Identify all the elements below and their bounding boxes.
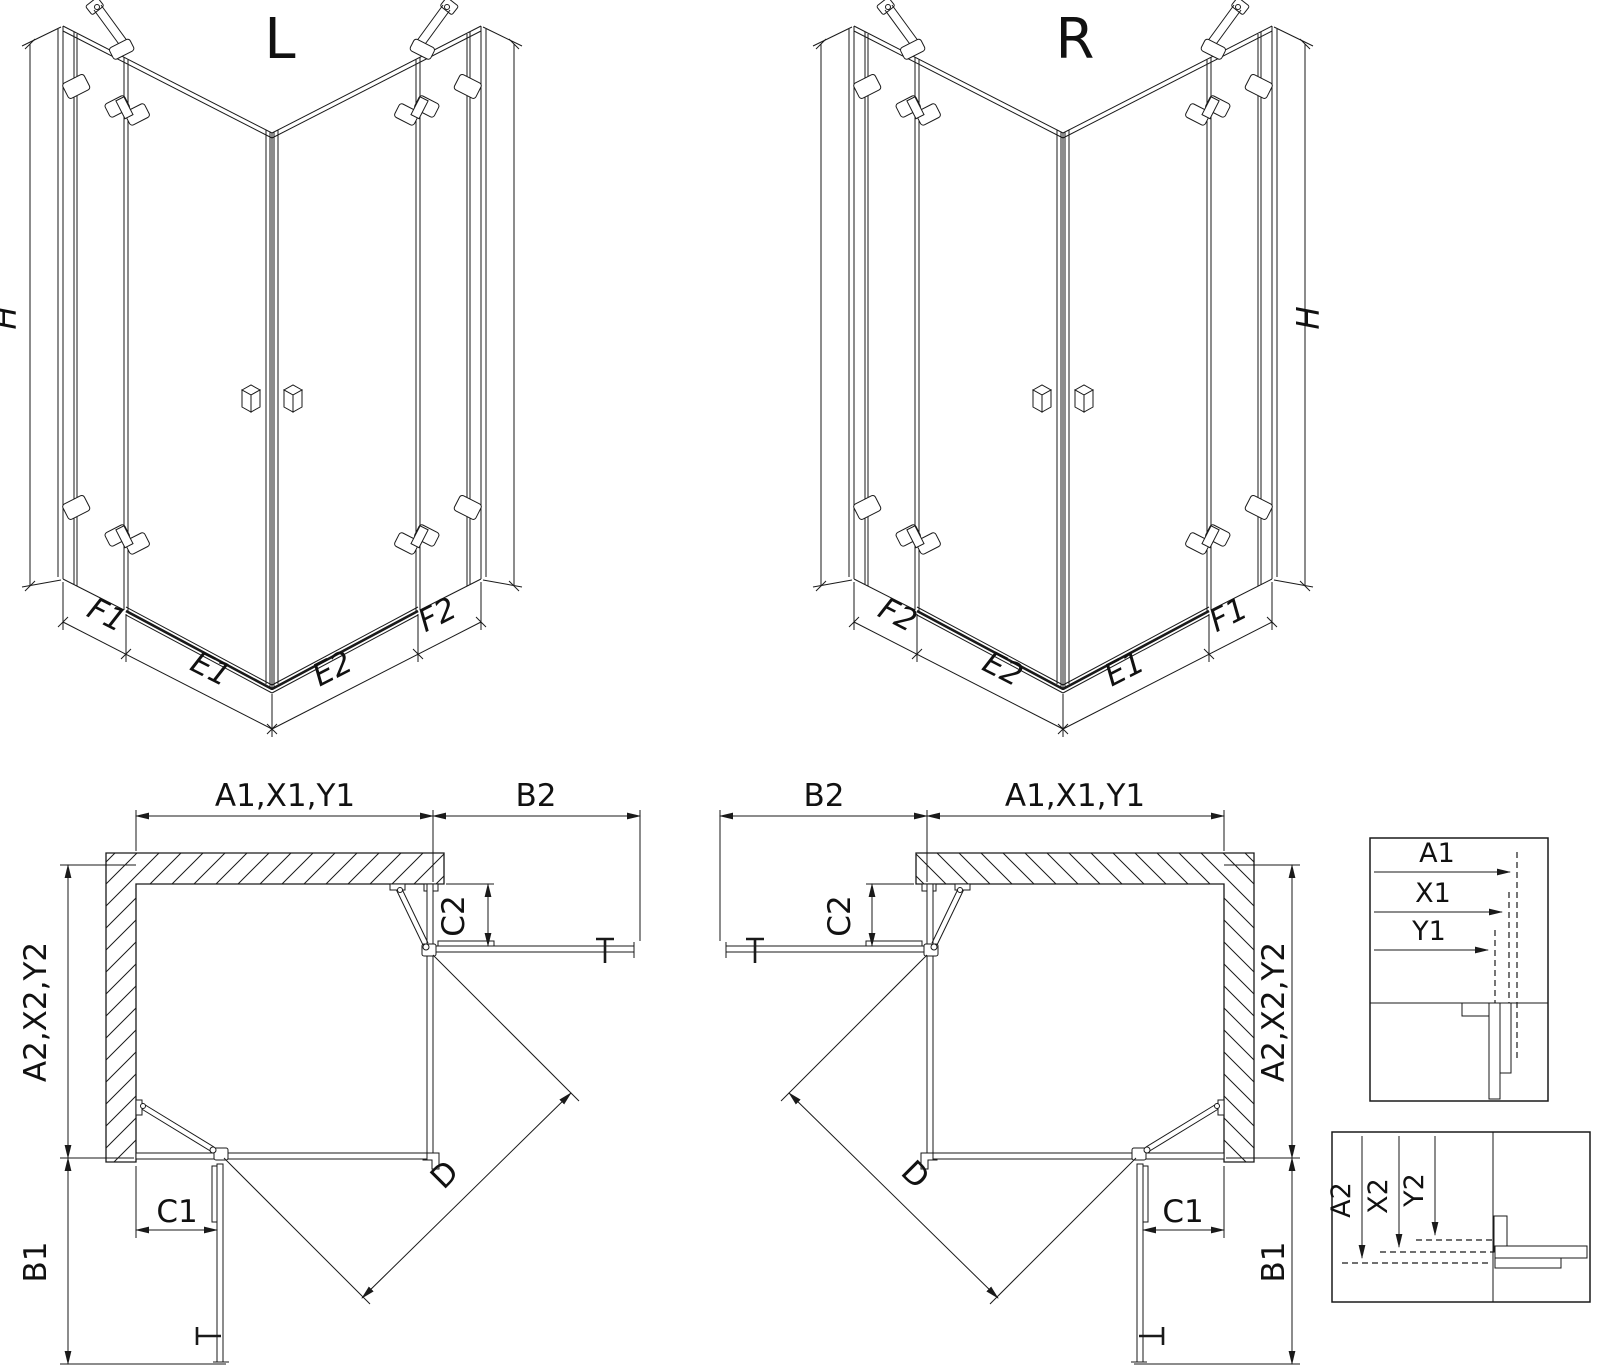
dim-label-e1-left: E1	[185, 644, 236, 694]
detail-label-x1: X1	[1415, 878, 1451, 909]
technical-drawing-page: L H F1 E1 E2 F2 R H F2 E2 E1 F1 A1,X1,Y1…	[0, 0, 1600, 1371]
dim-label-h-left: H	[0, 306, 24, 329]
plan-view-left: A1,X1,Y1 B2 A2,X2,Y2 B1 C2 C1 D	[18, 778, 640, 1364]
dim-label-e1-right: E1	[1099, 644, 1150, 694]
dim-label-b2-planleft: B2	[516, 778, 557, 814]
dim-label-c2-planleft: C2	[436, 895, 472, 936]
shower-enclosure-diagram: L H F1 E1 E2 F2 R H F2 E2 E1 F1 A1,X1,Y1…	[0, 0, 1600, 1371]
dim-label-a1x1y1-planleft: A1,X1,Y1	[215, 778, 355, 814]
detail-label-y1: Y1	[1411, 916, 1446, 947]
dim-label-h-right: H	[1291, 306, 1327, 329]
dim-label-c1-planright: C1	[1162, 1194, 1203, 1230]
detail-a2x2y2: A2 X2 Y2	[1326, 1132, 1590, 1302]
dim-label-b1-planleft: B1	[18, 1242, 54, 1283]
iso-view-left: L H F1 E1 E2 F2	[0, 0, 522, 737]
detail-label-x2: X2	[1363, 1178, 1394, 1214]
detail-label-a2: A2	[1326, 1182, 1357, 1218]
dim-label-a2x2y2-planleft: A2,X2,Y2	[18, 942, 54, 1082]
dim-label-a1x1y1-planright: A1,X1,Y1	[1005, 778, 1145, 814]
dim-label-a2x2y2-planright: A2,X2,Y2	[1256, 942, 1292, 1082]
dim-label-c1-planleft: C1	[156, 1194, 197, 1230]
dim-label-c2-planright: C2	[822, 895, 858, 936]
view-title-right: R	[1056, 7, 1095, 72]
dim-label-b1-planright: B1	[1256, 1242, 1292, 1283]
iso-view-right: R H F2 E2 E1 F1	[813, 0, 1327, 737]
detail-label-y2: Y2	[1399, 1173, 1430, 1208]
detail-a1x1y1: A1 X1 Y1	[1370, 838, 1548, 1101]
view-title-left: L	[264, 7, 295, 72]
plan-view-right: B2 A1,X1,Y1 A2,X2,Y2 B1 C2 C1 D	[720, 778, 1300, 1364]
detail-label-a1: A1	[1419, 838, 1455, 869]
dim-label-b2-planright: B2	[804, 778, 845, 814]
